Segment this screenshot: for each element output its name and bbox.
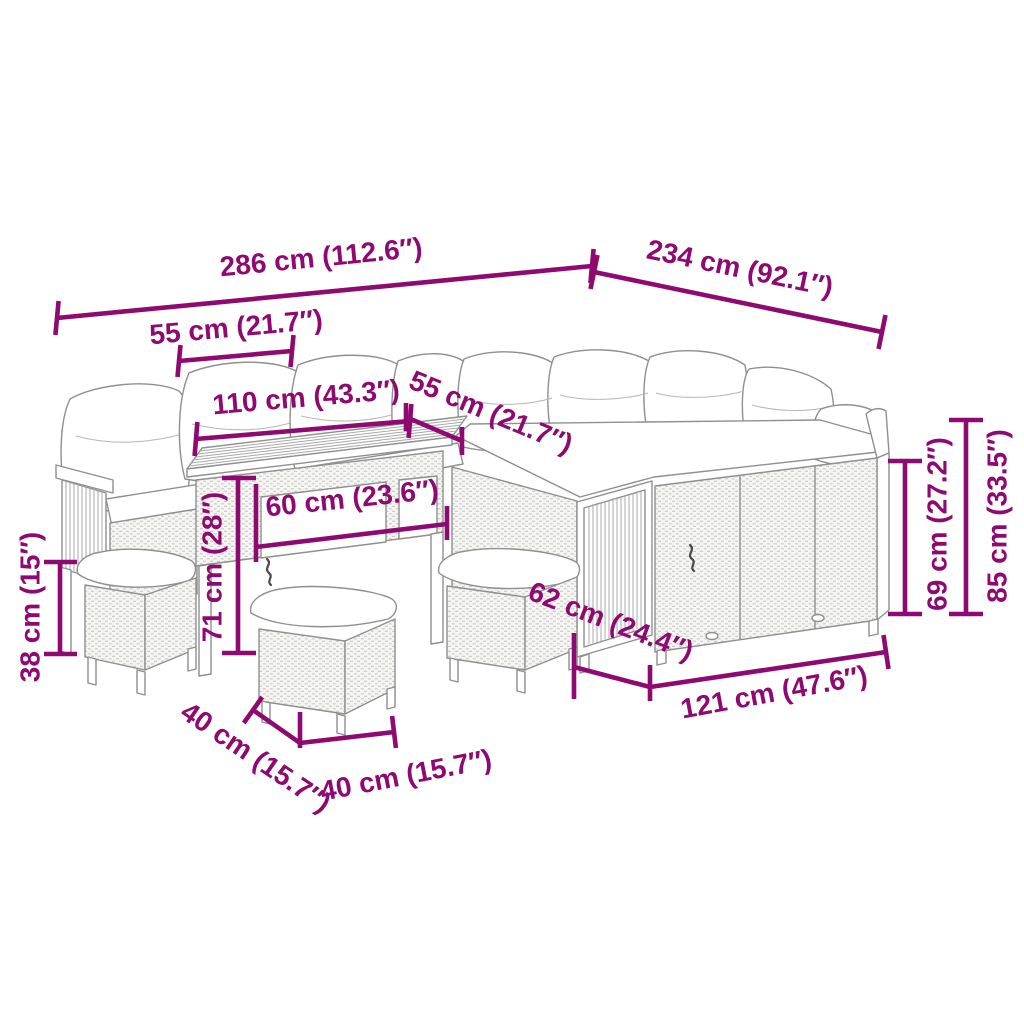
stool-cushion	[251, 587, 397, 627]
front-face-rivet	[706, 633, 718, 640]
dim-label-stool-width: 40 cm (15.7″)	[318, 743, 494, 807]
dining-table	[187, 416, 467, 676]
dim-label-left-seat-width: 55 cm (21.7″)	[148, 304, 324, 351]
dim-label-total-width: 286 cm (112.6″)	[218, 232, 423, 283]
furniture-dimension-diagram: 286 cm (112.6″) 234 cm (92.1″) 55 cm (21…	[0, 0, 1024, 1024]
dimension-stool-width: 40 cm (15.7″)	[300, 716, 494, 807]
stool-left	[77, 549, 196, 695]
cushion-tie	[267, 559, 271, 585]
dim-label-stool-height: 38 cm (15″)	[15, 532, 46, 682]
product-dimension-diagram-page: 286 cm (112.6″) 234 cm (92.1″) 55 cm (21…	[0, 0, 1024, 1024]
dimension-total-width: 286 cm (112.6″)	[55, 232, 593, 335]
stool-cushion	[77, 549, 195, 587]
dimension-stool-depth: 40 cm (15.7″)	[175, 696, 336, 819]
right-side-panel	[877, 453, 889, 620]
right-sofa-front-face	[655, 458, 877, 652]
front-face-rivet	[812, 615, 824, 622]
stool-center	[251, 587, 397, 735]
dim-label-backrest-height: 69 cm (27.2″)	[922, 437, 953, 611]
dimension-total-height: 85 cm (33.5″)	[949, 420, 1013, 614]
dim-label-total-height: 85 cm (33.5″)	[982, 429, 1013, 603]
dimension-backrest-height: 69 cm (27.2″)	[888, 437, 953, 614]
dimension-total-depth: 234 cm (92.1″)	[591, 233, 886, 349]
dim-label-total-depth: 234 cm (92.1″)	[644, 233, 836, 302]
stool-right	[439, 549, 580, 693]
dim-label-table-height: 71 cm (28″)	[197, 492, 228, 642]
